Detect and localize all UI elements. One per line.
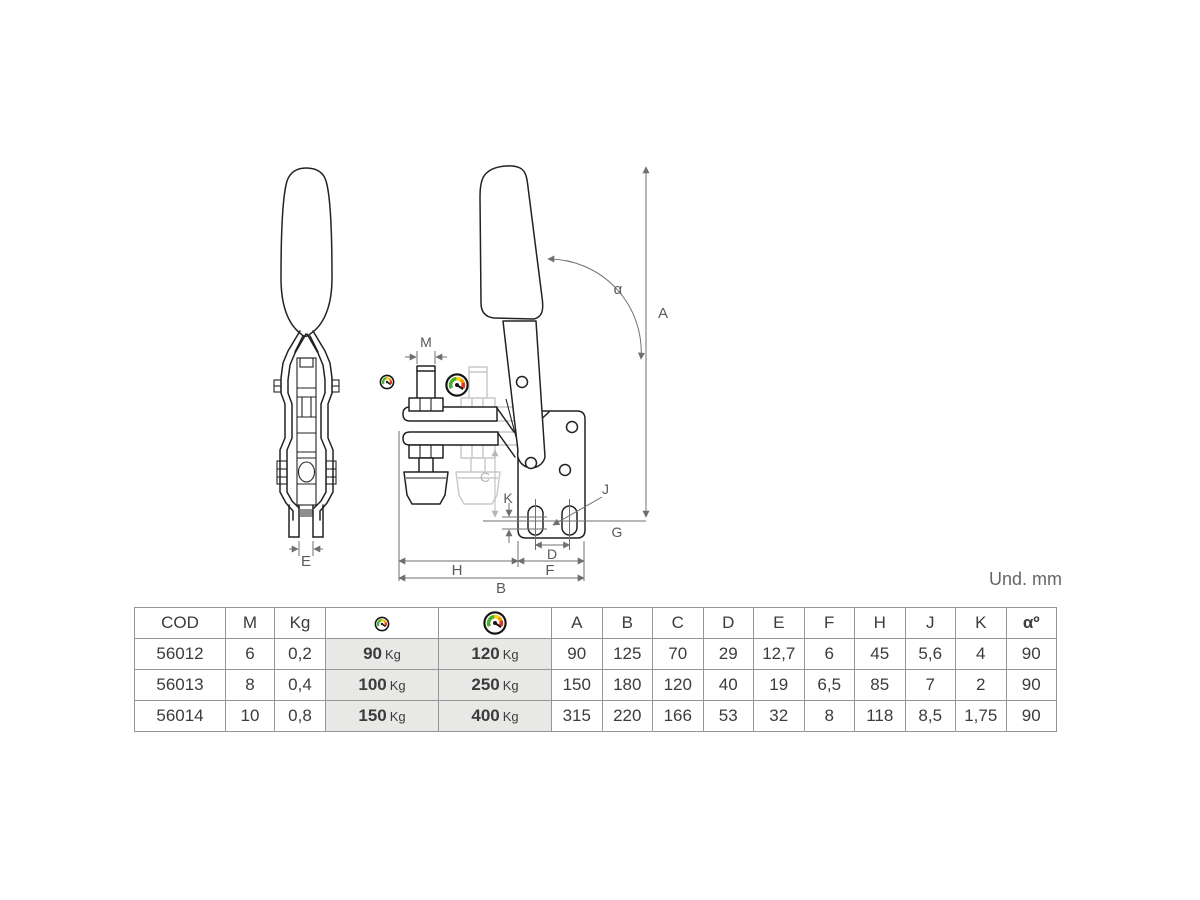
cell-dim: 90 (552, 639, 603, 670)
gauge-icon-large (446, 374, 467, 395)
cell-m: 8 (226, 670, 275, 701)
cell-dim: 85 (855, 670, 906, 701)
cell-dim: 5,6 (905, 639, 956, 670)
cell-dim: 6,5 (804, 670, 855, 701)
cell-m: 10 (226, 701, 275, 732)
dim-label-k: K (503, 490, 513, 506)
col-header-e: E (754, 608, 805, 639)
col-header-kg: Kg (275, 608, 326, 639)
col-header-cod: COD (135, 608, 226, 639)
cell-dim: 90 (1006, 701, 1057, 732)
cell-kg: 0,8 (275, 701, 326, 732)
cell-dim: 1,75 (956, 701, 1007, 732)
cell-dim: 40 (703, 670, 754, 701)
technical-drawing: E C (0, 0, 1200, 600)
cell-dim: 12,7 (754, 639, 805, 670)
col-header-j: J (905, 608, 956, 639)
cell-dim: 8 (804, 701, 855, 732)
spec-table: COD M Kg A B C D E F H J K αº 56012 6 0,… (134, 607, 1057, 732)
cell-dim: 150 (552, 670, 603, 701)
col-header-force-large (439, 608, 552, 639)
cell-force-large: 250Kg (439, 670, 552, 701)
col-header-a: A (552, 608, 603, 639)
cell-dim: 4 (956, 639, 1007, 670)
cell-dim: 118 (855, 701, 906, 732)
cell-force-small: 90Kg (326, 639, 439, 670)
dim-label-alpha: α (614, 281, 623, 298)
cell-dim: 220 (602, 701, 653, 732)
header-row: COD M Kg A B C D E F H J K αº (135, 608, 1057, 639)
cell-dim: 53 (703, 701, 754, 732)
cell-dim: 120 (653, 670, 704, 701)
cell-dim: 19 (754, 670, 805, 701)
cell-dim: 7 (905, 670, 956, 701)
cell-dim: 6 (804, 639, 855, 670)
dim-label-h: H (452, 562, 463, 579)
cell-dim: 29 (703, 639, 754, 670)
dim-label-c: C (480, 469, 490, 485)
side-view-drawing: C (380, 166, 668, 597)
units-note: Und. mm (989, 569, 1062, 590)
col-header-force-small (326, 608, 439, 639)
cell-dim: 315 (552, 701, 603, 732)
cell-dim: 45 (855, 639, 906, 670)
gauge-icon-small (374, 616, 390, 632)
col-header-k: K (956, 608, 1007, 639)
cell-cod: 56012 (135, 639, 226, 670)
dim-label-j: J (602, 481, 609, 497)
gauge-icon-small (380, 375, 393, 388)
col-header-m: M (226, 608, 275, 639)
dim-label-d: D (547, 546, 557, 562)
cell-force-small: 150Kg (326, 701, 439, 732)
cell-kg: 0,4 (275, 670, 326, 701)
dim-label-a: A (658, 305, 668, 322)
cell-dim: 8,5 (905, 701, 956, 732)
cell-dim: 32 (754, 701, 805, 732)
cell-dim: 125 (602, 639, 653, 670)
cell-kg: 0,2 (275, 639, 326, 670)
cell-dim: 90 (1006, 670, 1057, 701)
table-row: 56013 8 0,4 100Kg 250Kg 150 180 120 40 1… (135, 670, 1057, 701)
cell-cod: 56013 (135, 670, 226, 701)
cell-force-small: 100Kg (326, 670, 439, 701)
dim-label-f: F (545, 562, 554, 579)
dim-label-g: G (612, 524, 623, 540)
cell-m: 6 (226, 639, 275, 670)
cell-dim: 70 (653, 639, 704, 670)
dim-label-m: M (420, 334, 432, 350)
cell-dim: 166 (653, 701, 704, 732)
dim-label-b: B (496, 580, 506, 597)
cell-dim: 90 (1006, 639, 1057, 670)
cell-cod: 56014 (135, 701, 226, 732)
cell-force-large: 400Kg (439, 701, 552, 732)
front-handle (281, 168, 332, 336)
col-header-d: D (703, 608, 754, 639)
front-view-drawing: E (274, 168, 339, 570)
lever-arm (503, 321, 545, 468)
gauge-icon-large (482, 610, 508, 636)
cell-force-large: 120Kg (439, 639, 552, 670)
col-header-f: F (804, 608, 855, 639)
side-handle (480, 166, 543, 319)
table-row: 56012 6 0,2 90Kg 120Kg 90 125 70 29 12,7… (135, 639, 1057, 670)
table-row: 56014 10 0,8 150Kg 400Kg 315 220 166 53 … (135, 701, 1057, 732)
cell-dim: 2 (956, 670, 1007, 701)
col-header-b: B (602, 608, 653, 639)
col-header-c: C (653, 608, 704, 639)
col-header-alpha: αº (1006, 608, 1057, 639)
cell-dim: 180 (602, 670, 653, 701)
dim-label-e: E (301, 553, 311, 570)
col-header-h: H (855, 608, 906, 639)
